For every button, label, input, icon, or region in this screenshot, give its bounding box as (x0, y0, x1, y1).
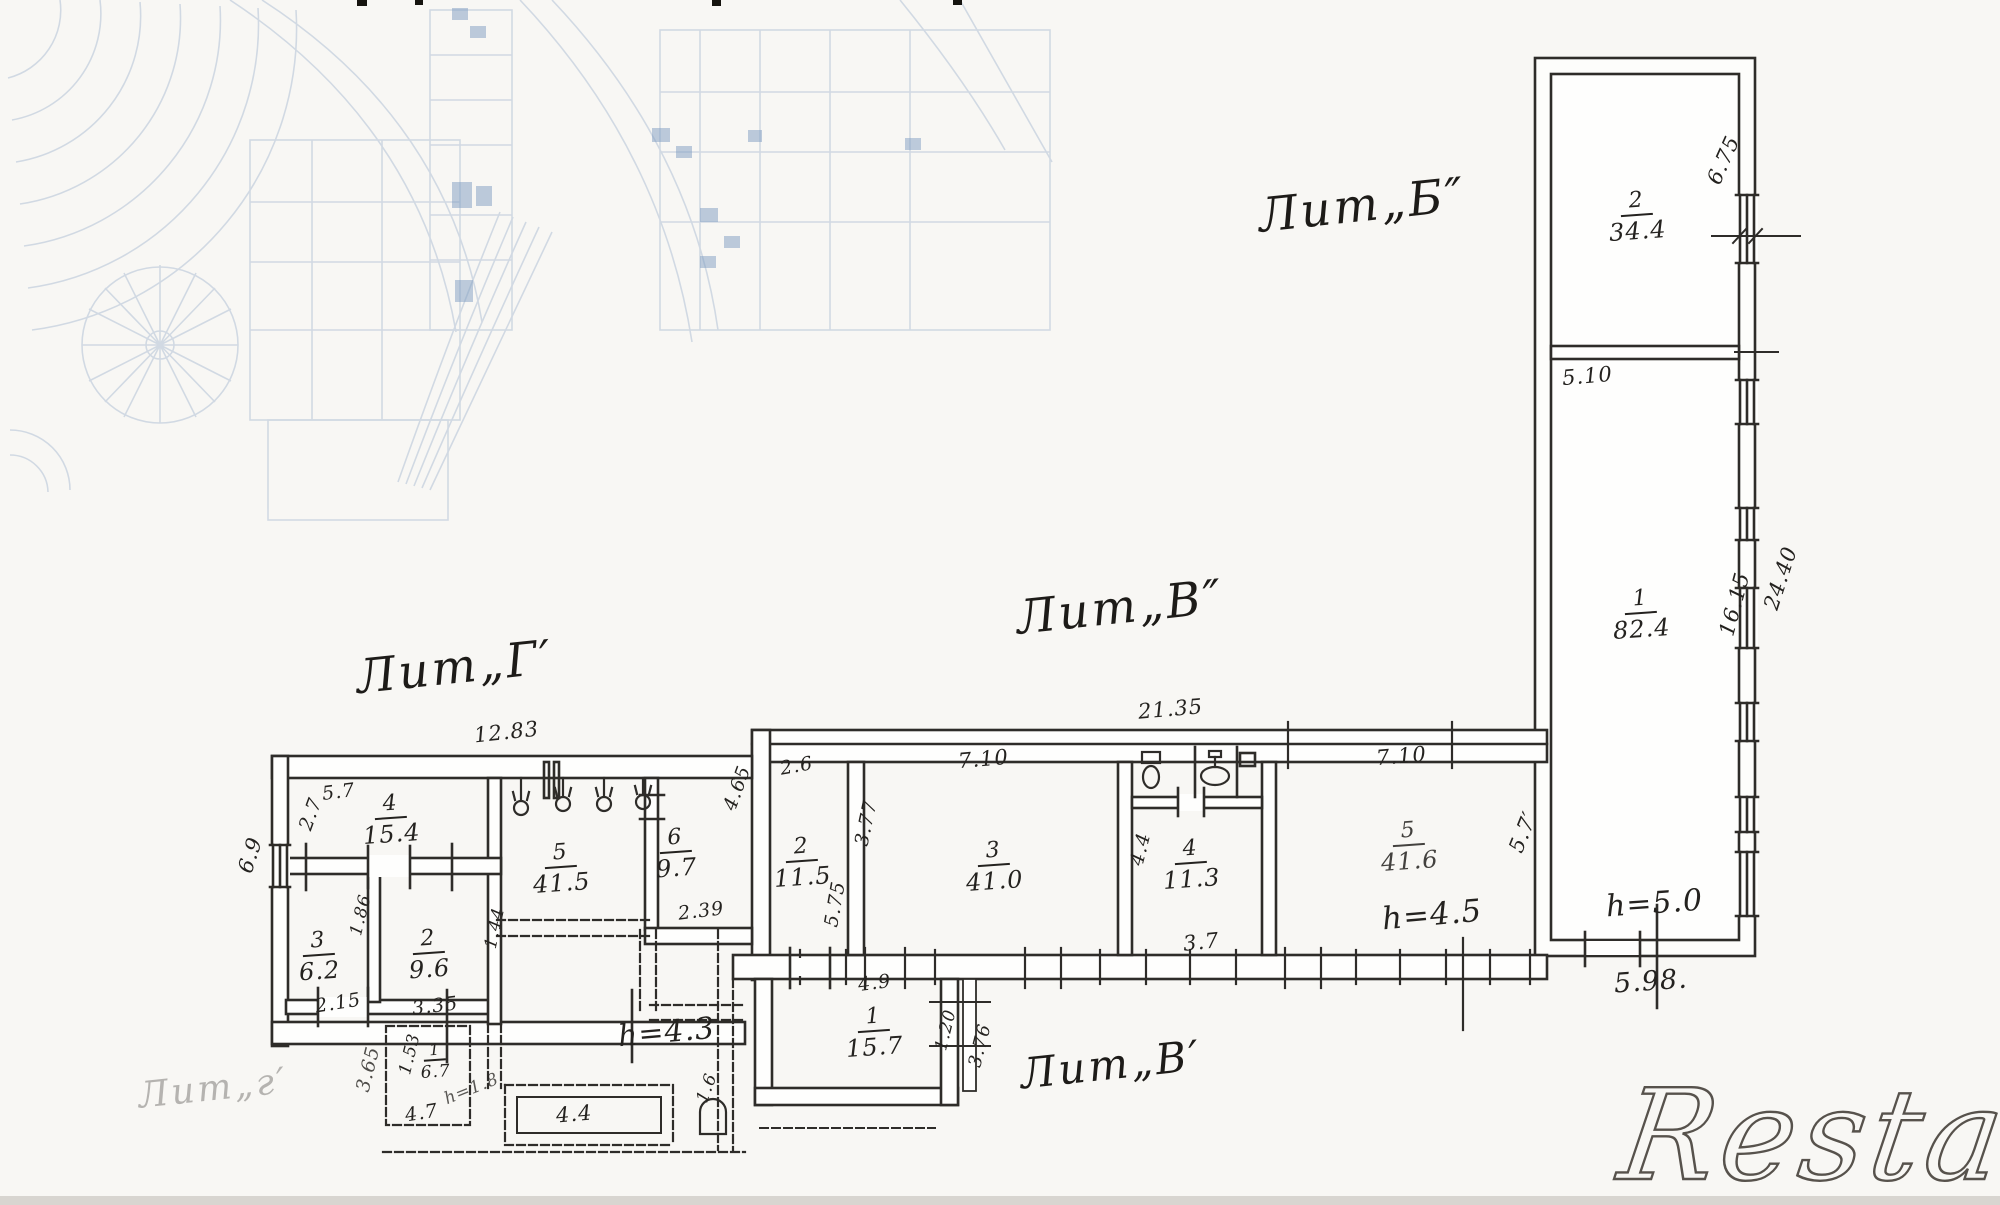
dim-label: 7.10 (1375, 742, 1428, 770)
floorplan-scan: Лит„Б″ Лит„В″ Лит„В′ Лит„Г′ Лит„г′ 234.4… (0, 0, 2000, 1205)
window-icon (270, 845, 290, 887)
dim-label: 4.4 (555, 1100, 593, 1127)
room-label: 211.5 (771, 834, 832, 891)
plan-drawing (0, 0, 2000, 1205)
blueprint-underlay (8, 0, 1052, 520)
blueprint-underlay-marks (452, 8, 921, 302)
room-label: 234.4 (1606, 188, 1667, 245)
room-label: 182.4 (1610, 586, 1671, 643)
room-label: 415.4 (360, 791, 421, 848)
dim-label: 3.7 (1182, 928, 1221, 956)
room-label: 115.7 (843, 1004, 904, 1061)
dim-label: 5.98. (1613, 963, 1689, 999)
room-label: 541.5 (530, 840, 591, 897)
room-label: 69.7 (653, 826, 698, 882)
room-label: 16.7 (419, 1041, 452, 1082)
scan-edge-marks (357, 0, 962, 6)
lamp-icon (555, 778, 571, 811)
window-icon (1736, 508, 1758, 540)
dim-label: 7.10 (957, 745, 1010, 773)
room-label: 341.0 (963, 838, 1024, 895)
building-lit-v (733, 722, 1547, 1030)
basin-icon (700, 1099, 726, 1134)
window-icon (1736, 380, 1758, 424)
lamp-icon (513, 778, 529, 815)
room-label: 36.2 (296, 929, 341, 985)
restate-watermark: Restate (1612, 1062, 2000, 1205)
window-icon (1736, 852, 1758, 916)
building-lit-b (1535, 58, 1800, 1008)
dim-label: 5.10 (1561, 362, 1614, 390)
window-icon (1736, 797, 1758, 832)
window-icon (1736, 703, 1758, 741)
dim-label: 4.9 (857, 970, 893, 996)
room-label: 541.6 (1378, 818, 1439, 875)
dim-label: h=5.0 (1605, 883, 1704, 925)
lamp-icon (596, 778, 612, 811)
room-label: 411.3 (1160, 836, 1221, 893)
room-label: 29.6 (406, 927, 451, 983)
